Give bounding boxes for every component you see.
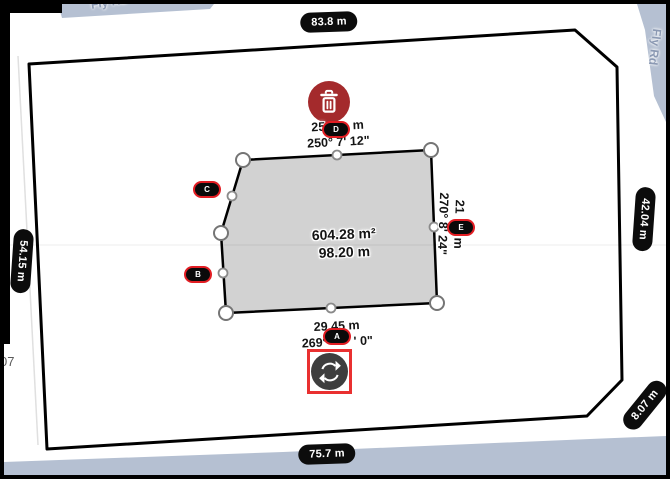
midpoint-handle[interactable] (327, 304, 336, 313)
road-band-top (58, 4, 214, 18)
point-badge-b: B (184, 266, 212, 283)
vertex-handle[interactable] (424, 143, 438, 157)
rotate-button-circle (311, 353, 348, 390)
plot-center-labels: 604.28 m² 98.20 m (273, 223, 414, 264)
midpoint-handle[interactable] (333, 151, 342, 160)
screenshot-frame: Fly Rd Fly Rd 07 83.8 m 54.15 m 42.04 m … (0, 0, 670, 479)
map-canvas[interactable]: Fly Rd Fly Rd 07 83.8 m 54.15 m 42.04 m … (4, 4, 666, 475)
map-edge-strip-top-left (4, 4, 62, 13)
rotate-button[interactable] (307, 349, 352, 394)
point-badge-a: A (323, 328, 351, 345)
midpoint-handle[interactable] (228, 192, 237, 201)
point-badge-e: E (447, 219, 475, 236)
point-badge-c: C (193, 181, 221, 198)
parcel-number: 07 (4, 354, 14, 369)
measurement-pill-bottom: 75.7 m (298, 443, 356, 465)
vertex-handle[interactable] (236, 153, 250, 167)
measurement-pill-top: 83.8 m (300, 11, 358, 33)
midpoint-handle[interactable] (219, 269, 228, 278)
vertex-handle[interactable] (214, 226, 228, 240)
rotate-icon (313, 355, 347, 389)
point-badge-d: D (322, 121, 350, 138)
vertex-handle[interactable] (430, 296, 444, 310)
map-edge-strip-left (4, 4, 10, 344)
vertex-handle[interactable] (219, 306, 233, 320)
